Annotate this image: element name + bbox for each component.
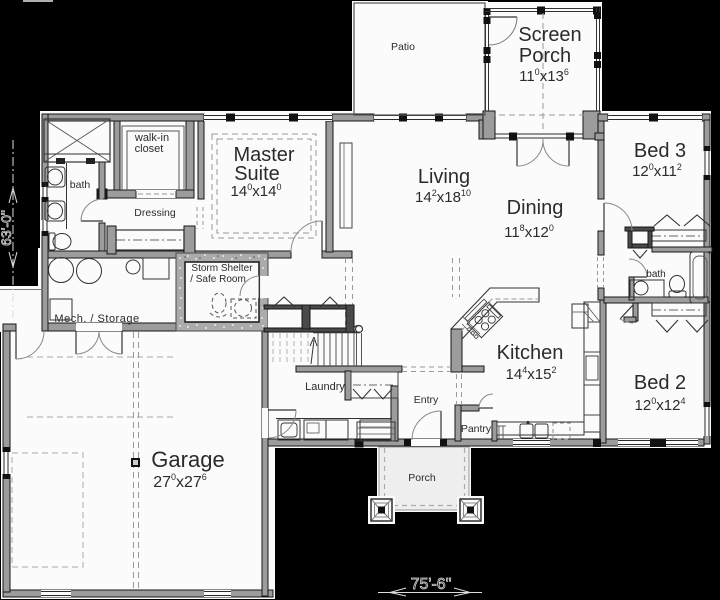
svg-text:Kitchen: Kitchen <box>497 342 564 364</box>
svg-text:118x120: 118x120 <box>504 223 554 241</box>
svg-text:Porch: Porch <box>408 472 436 484</box>
svg-text:144x152: 144x152 <box>506 365 557 383</box>
svg-text:bath: bath <box>646 269 665 280</box>
svg-text:75'-6": 75'-6" <box>411 576 452 593</box>
svg-text:120x124: 120x124 <box>635 396 686 414</box>
svg-text:Porch: Porch <box>519 45 571 67</box>
svg-text:Screen: Screen <box>518 24 581 46</box>
svg-text:63'-0": 63'-0" <box>0 210 14 246</box>
svg-text:bath: bath <box>70 179 91 191</box>
svg-text:Living: Living <box>418 166 470 188</box>
svg-text:Pantry: Pantry <box>461 423 492 435</box>
svg-text:/ Safe Room: / Safe Room <box>190 274 246 285</box>
svg-text:Suite: Suite <box>234 163 280 185</box>
svg-text:closet: closet <box>135 143 164 155</box>
svg-text:Dining: Dining <box>507 197 564 219</box>
svg-text:120x112: 120x112 <box>632 162 682 180</box>
svg-text:Patio: Patio <box>391 41 415 53</box>
svg-text:140x140: 140x140 <box>231 182 282 200</box>
svg-text:110x136: 110x136 <box>519 67 569 85</box>
svg-text:Laundry: Laundry <box>305 381 345 393</box>
svg-text:Storm Shelter: Storm Shelter <box>191 263 253 274</box>
svg-text:270x276: 270x276 <box>153 472 207 491</box>
svg-text:Garage: Garage <box>151 447 224 472</box>
svg-text:Bed 2: Bed 2 <box>634 372 686 394</box>
svg-text:Dressing: Dressing <box>134 207 176 219</box>
svg-text:Mech. / Storage: Mech. / Storage <box>54 313 139 325</box>
svg-text:Bed 3: Bed 3 <box>634 140 686 162</box>
svg-text:Entry: Entry <box>414 394 439 406</box>
